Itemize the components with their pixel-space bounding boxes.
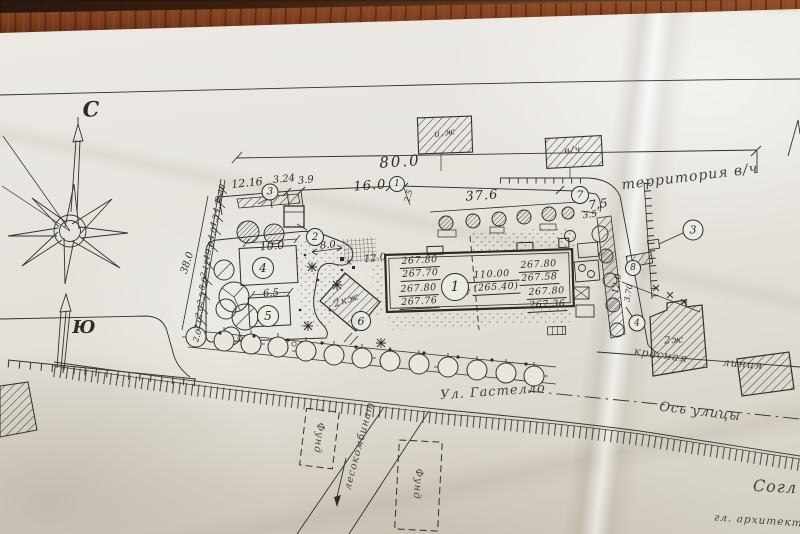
elevation-top-left: 267.80 267.70 xyxy=(399,254,441,282)
marker-6: 6 xyxy=(351,311,371,331)
site-plan-photo: С Ю 80.0 12.16 3.24 3.9 16.0 37.6 7,5 3.… xyxy=(0,0,800,534)
marker-3-a: 3 xyxy=(262,184,279,201)
foundation-label-2: Фунд xyxy=(411,468,424,500)
marker-8: 8 xyxy=(625,260,641,276)
dim-3-5: 3.5 xyxy=(582,211,597,221)
elevation-bottom-left: 267.80 267.76 xyxy=(398,282,440,310)
hatched-building-north xyxy=(417,116,602,168)
red-line-label-2: линия xyxy=(722,357,764,372)
marker-7: 7 xyxy=(571,186,589,204)
marker-4-a: 4 xyxy=(252,257,274,279)
elevation-top-right: 267.80 267.58 xyxy=(518,258,560,286)
dim-7-5: 7,5 xyxy=(588,197,609,212)
compass-south-label: Ю xyxy=(72,319,95,337)
sheet-border-line xyxy=(0,79,800,156)
compass-north-label: С xyxy=(82,98,99,120)
elevation-bottom-right: 267.80 267.36 xyxy=(526,285,568,313)
dim-12-16: 12.16 xyxy=(231,176,263,190)
signature-agreed: Согл xyxy=(753,478,798,496)
k-mark-label: к xyxy=(346,259,351,268)
red-line-buildings xyxy=(597,300,800,396)
left-road-lines xyxy=(0,316,196,383)
dim-sq4-10: 10.0 xyxy=(259,240,284,253)
dim-sq5-6-5: 6.5 xyxy=(263,288,280,299)
marker-2: 2 xyxy=(306,228,324,246)
elevation-level-mark: 110.00 ▽ (265.40) xyxy=(463,268,521,297)
marker-3-b: 3 xyxy=(683,220,704,241)
street-trees-row xyxy=(182,323,556,386)
dim-total-80: 80.0 xyxy=(379,153,421,170)
building-2zh-label: 2ж xyxy=(664,335,684,346)
dim-16-0: 16.0 xyxy=(353,178,387,193)
dim-37-6: 37.6 xyxy=(465,188,499,203)
marker-1-dimension: 1 xyxy=(389,176,405,192)
marker-1-building: 1 xyxy=(441,273,469,301)
compass-rose-icon xyxy=(2,117,128,370)
dim-3-9: 3.9 xyxy=(298,175,315,187)
marker-4-b: 4 xyxy=(629,315,646,332)
marker-5: 5 xyxy=(257,305,279,327)
